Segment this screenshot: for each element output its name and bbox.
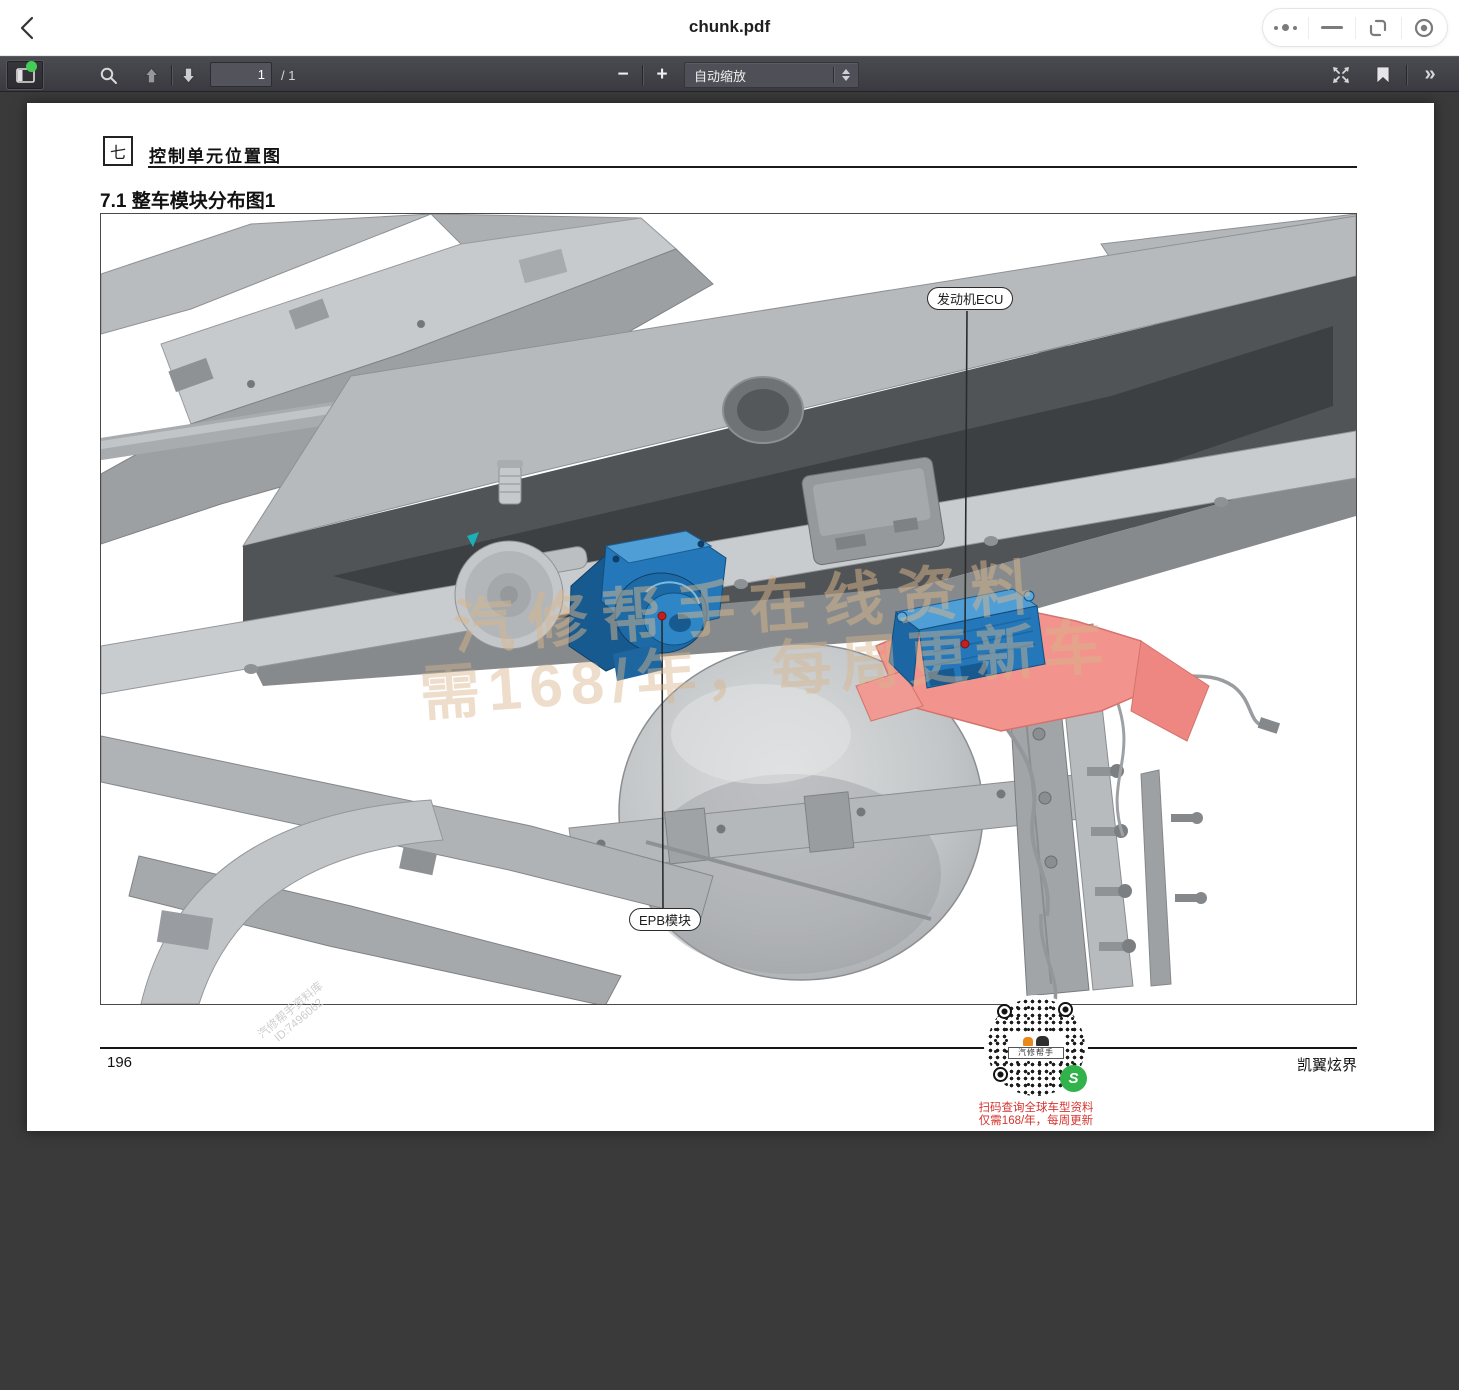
footer-rule bbox=[100, 1047, 1357, 1049]
qr-center-logo: 汽修帮手 bbox=[1008, 1034, 1064, 1060]
previous-page-button[interactable] bbox=[139, 63, 163, 87]
more-menu-button[interactable] bbox=[1263, 9, 1308, 46]
ecu-marker-dot bbox=[961, 640, 969, 648]
toolbar-separator bbox=[1406, 65, 1407, 85]
record-circle-icon bbox=[1413, 17, 1435, 39]
back-chevron-icon bbox=[16, 15, 42, 41]
page-number: 196 bbox=[107, 1054, 132, 1071]
app-bar: chunk.pdf bbox=[0, 0, 1459, 56]
zoom-in-icon: + bbox=[656, 65, 667, 85]
minimize-icon bbox=[1321, 26, 1343, 29]
strut-opening-graphic bbox=[723, 377, 803, 443]
page-count-label: / 1 bbox=[281, 68, 295, 83]
qr-logo-text: 汽修帮手 bbox=[1008, 1047, 1064, 1059]
pdf-page: 七 控制单元位置图 7.1 整车模块分布图1 bbox=[27, 103, 1434, 1131]
pdf-toolbar: / 1 − + 自动缩放 bbox=[0, 56, 1459, 92]
chassis-diagram bbox=[101, 214, 1356, 1004]
screen: chunk.pdf bbox=[0, 0, 1459, 1390]
bookmark-button[interactable] bbox=[1371, 63, 1395, 87]
orange-cat-icon bbox=[1023, 1037, 1033, 1046]
zoom-in-button[interactable]: + bbox=[650, 63, 674, 87]
window-capsule bbox=[1262, 8, 1448, 47]
search-icon bbox=[99, 66, 118, 85]
callout-epb-module: EPB模块 bbox=[629, 908, 701, 931]
qr-logo-mascots bbox=[1008, 1036, 1064, 1046]
more-dots-icon bbox=[1274, 24, 1297, 31]
page-up-icon bbox=[143, 67, 160, 84]
wechat-icon: S bbox=[1060, 1065, 1087, 1092]
chapter-title: 控制单元位置图 bbox=[149, 142, 282, 167]
figure-frame: 汽修帮手在线资料 需168/年，每周更新车 发动机ECU EPB模块 bbox=[100, 213, 1357, 1005]
footer-doc-title: 凯翼炫界 bbox=[1297, 1054, 1357, 1075]
page-down-icon bbox=[180, 67, 197, 84]
page-number-input[interactable] bbox=[210, 62, 272, 87]
black-cat-icon bbox=[1036, 1036, 1049, 1046]
callout-engine-ecu: 发动机ECU bbox=[927, 287, 1013, 310]
epb-marker-dot bbox=[658, 612, 666, 620]
zoom-out-button[interactable]: − bbox=[611, 63, 635, 87]
section-title: 7.1 整车模块分布图1 bbox=[100, 186, 275, 213]
zoom-select[interactable]: 自动缩放 bbox=[684, 62, 859, 88]
document-title: chunk.pdf bbox=[689, 17, 770, 37]
zoom-select-value: 自动缩放 bbox=[685, 66, 833, 85]
toolbar-separator bbox=[642, 65, 643, 85]
double-chevron-icon: » bbox=[1424, 64, 1435, 84]
qr-eye-icon bbox=[997, 1004, 1012, 1019]
fullscreen-arrows-icon bbox=[1331, 65, 1351, 85]
restore-icon bbox=[1368, 18, 1388, 38]
chapter-number-badge: 七 bbox=[103, 136, 133, 166]
zoom-out-icon: − bbox=[617, 65, 628, 85]
toggle-sidebar-button[interactable] bbox=[7, 61, 43, 89]
qr-block: 汽修帮手 S 扫码查询全球车型资料 仅需168/年，每周更新 bbox=[975, 995, 1097, 1128]
qr-eye-icon bbox=[993, 1067, 1008, 1082]
qr-promo-line1: 扫码查询全球车型资料 bbox=[975, 1102, 1097, 1115]
more-tools-button[interactable]: » bbox=[1418, 62, 1442, 86]
qr-code: 汽修帮手 S bbox=[984, 995, 1088, 1099]
dropdown-arrows-icon bbox=[834, 69, 858, 81]
presentation-mode-button[interactable] bbox=[1329, 63, 1353, 87]
restore-window-button[interactable] bbox=[1356, 9, 1401, 46]
minimize-button[interactable] bbox=[1309, 9, 1354, 46]
toolbar-separator bbox=[171, 65, 172, 85]
bookmark-icon bbox=[1376, 66, 1390, 84]
qr-promo-line2: 仅需168/年，每周更新 bbox=[975, 1115, 1097, 1128]
next-page-button[interactable] bbox=[176, 63, 200, 87]
chapter-underline bbox=[148, 166, 1357, 168]
back-button[interactable] bbox=[16, 15, 42, 41]
sidebar-notification-dot bbox=[26, 61, 37, 72]
find-button[interactable] bbox=[96, 63, 120, 87]
record-button[interactable] bbox=[1402, 9, 1447, 46]
qr-eye-icon bbox=[1058, 1002, 1073, 1017]
